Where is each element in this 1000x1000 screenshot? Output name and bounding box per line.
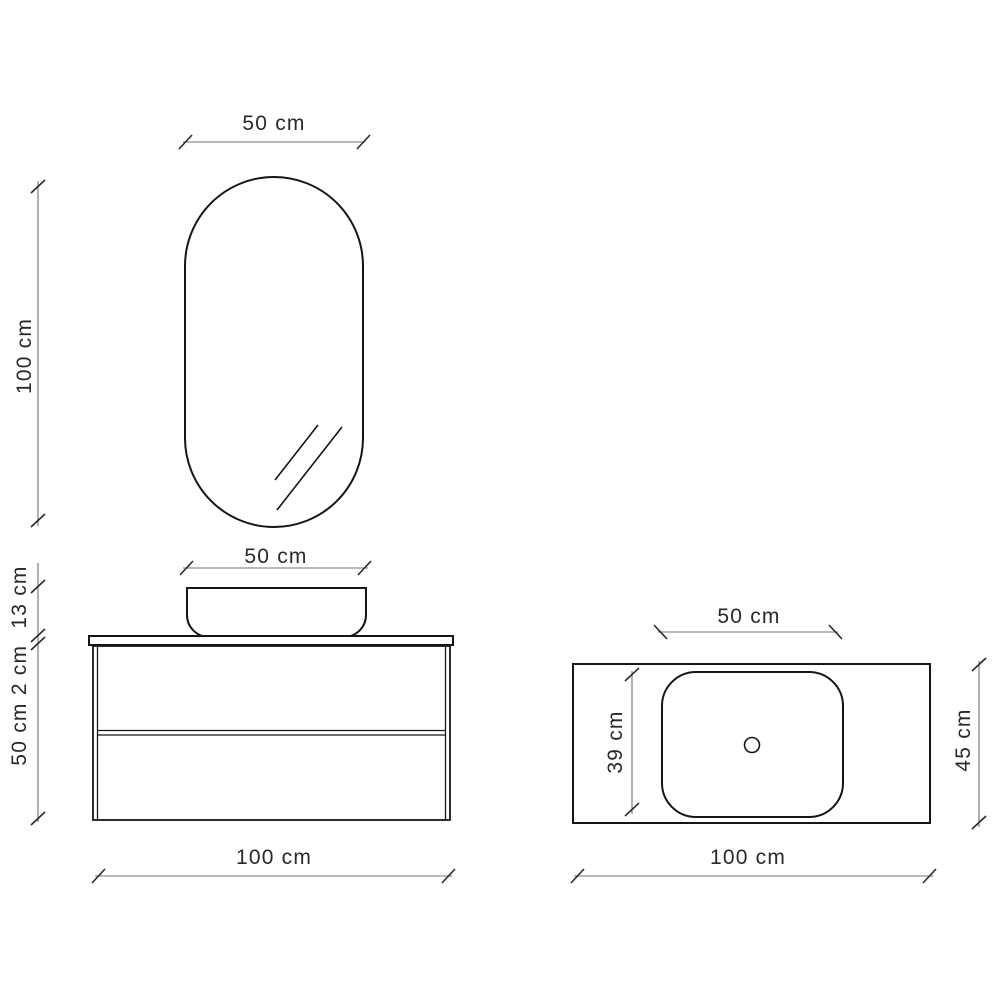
plan-counter-width-label: 100 cm bbox=[688, 845, 808, 871]
plan-basin-depth-label: 39 cm bbox=[603, 682, 629, 802]
vanity-width-label: 100 cm bbox=[214, 845, 334, 871]
drain-hole bbox=[745, 738, 760, 753]
plan-basin-width-label: 50 cm bbox=[689, 604, 809, 630]
mirror-width-label: 50 cm bbox=[214, 111, 334, 137]
cabinet-outline bbox=[93, 646, 450, 820]
vanity-front-view bbox=[31, 561, 455, 883]
cabinet-height-label: 50 cm bbox=[7, 674, 33, 794]
mirror-front-view bbox=[31, 135, 370, 527]
technical-drawing-canvas: 50 cm 100 cm 50 cm 13 cm 2 cm 50 cm 100 … bbox=[0, 0, 1000, 1000]
basin-front-outline bbox=[187, 588, 366, 637]
mirror-outline bbox=[185, 177, 363, 527]
mirror-height-label: 100 cm bbox=[12, 296, 38, 416]
vanity-technical-drawing bbox=[0, 0, 1000, 1000]
basin-width-label: 50 cm bbox=[216, 544, 336, 570]
plan-counter-depth-label: 45 cm bbox=[951, 680, 977, 800]
countertop-front-outline bbox=[89, 636, 453, 645]
